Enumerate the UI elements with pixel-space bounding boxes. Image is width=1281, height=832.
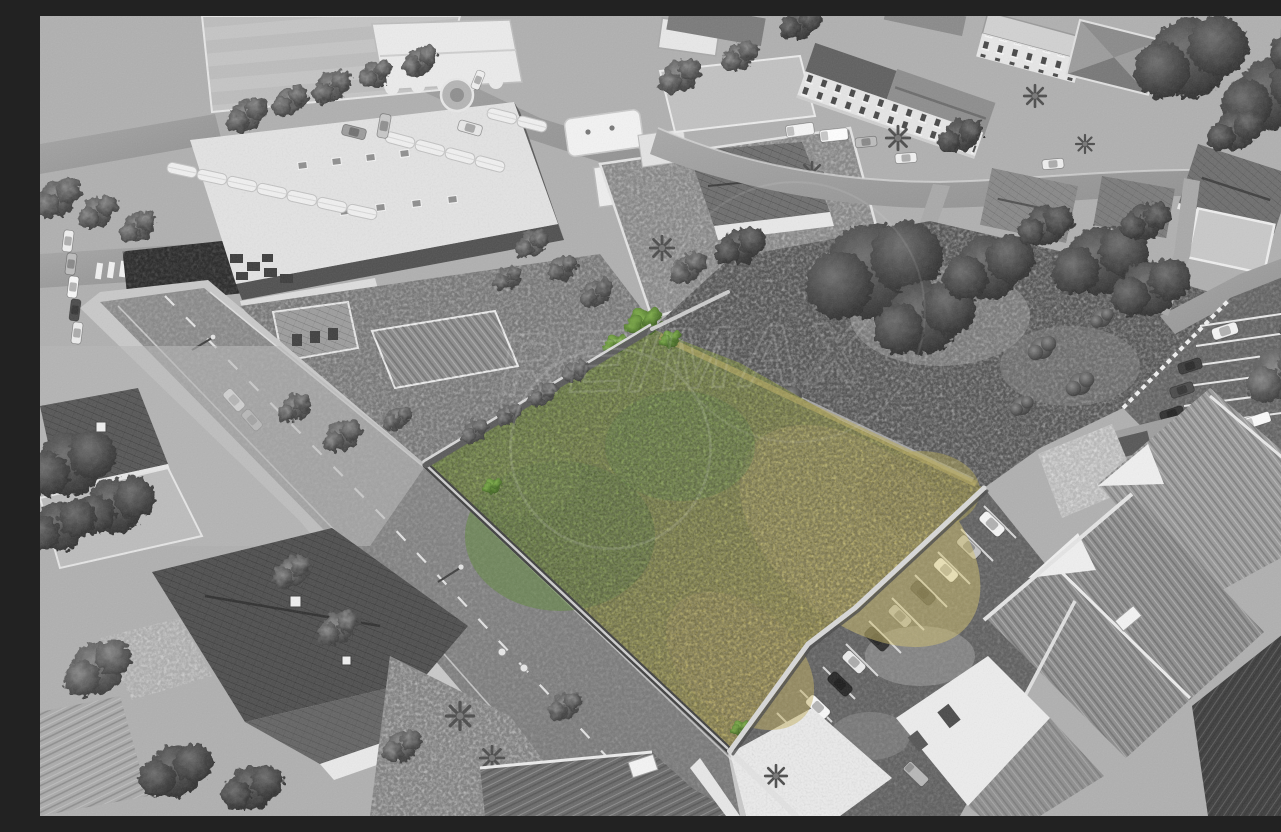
- aerial-photo-canvas: RE/MAX: [40, 16, 1281, 816]
- photo-grain-overlay: [40, 16, 1281, 816]
- aerial-photo: Black-and-white aerial drone view of a s…: [40, 16, 1281, 816]
